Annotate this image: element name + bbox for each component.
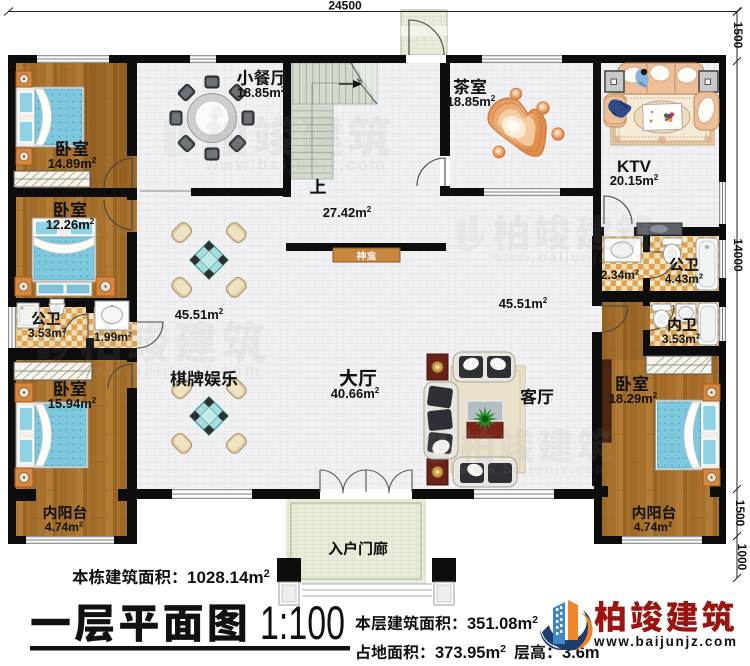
svg-text:www.baijunjz.com: www.baijunjz.com (204, 156, 388, 174)
svg-text:2.34m2: 2.34m2 (601, 267, 639, 282)
svg-text:www.baijunjz.com: www.baijunjz.com (78, 362, 262, 380)
svg-text:4.74m2: 4.74m2 (45, 519, 83, 534)
svg-text:45.51m2: 45.51m2 (175, 307, 224, 322)
svg-text:20.15m2: 20.15m2 (610, 173, 659, 188)
svg-text:373.95m2: 373.95m2 (435, 643, 506, 662)
svg-text:4.43m2: 4.43m2 (665, 271, 703, 286)
svg-text:12.26m2: 12.26m2 (46, 217, 95, 232)
svg-text:1028.14m2: 1028.14m2 (187, 568, 270, 587)
svg-text:1500: 1500 (733, 500, 747, 527)
svg-text:4.74m2: 4.74m2 (634, 519, 672, 534)
svg-text:24500: 24500 (328, 0, 362, 13)
svg-text:14000: 14000 (731, 238, 745, 272)
svg-text:18.29m2: 18.29m2 (609, 391, 658, 406)
svg-text:1000: 1000 (735, 544, 749, 571)
svg-text:27.42m2: 27.42m2 (323, 205, 372, 220)
svg-text:1:100: 1:100 (260, 596, 345, 649)
svg-text:18.85m2: 18.85m2 (237, 85, 286, 100)
svg-text:14.89m2: 14.89m2 (48, 156, 97, 171)
svg-text:18.85m2: 18.85m2 (447, 94, 496, 109)
svg-text:www.baijunjz.com: www.baijunjz.com (593, 634, 738, 649)
svg-text:www.baijunjz.com: www.baijunjz.com (459, 462, 609, 477)
svg-text:45.51m2: 45.51m2 (499, 296, 548, 311)
svg-text:1500: 1500 (731, 22, 745, 49)
svg-text:www.baijunjz.com: www.baijunjz.com (492, 249, 651, 265)
svg-text:15.94m2: 15.94m2 (48, 396, 97, 411)
svg-text:3.53m2: 3.53m2 (662, 331, 700, 346)
svg-text:351.08m2: 351.08m2 (467, 614, 538, 633)
svg-text:40.66m2: 40.66m2 (331, 386, 380, 401)
